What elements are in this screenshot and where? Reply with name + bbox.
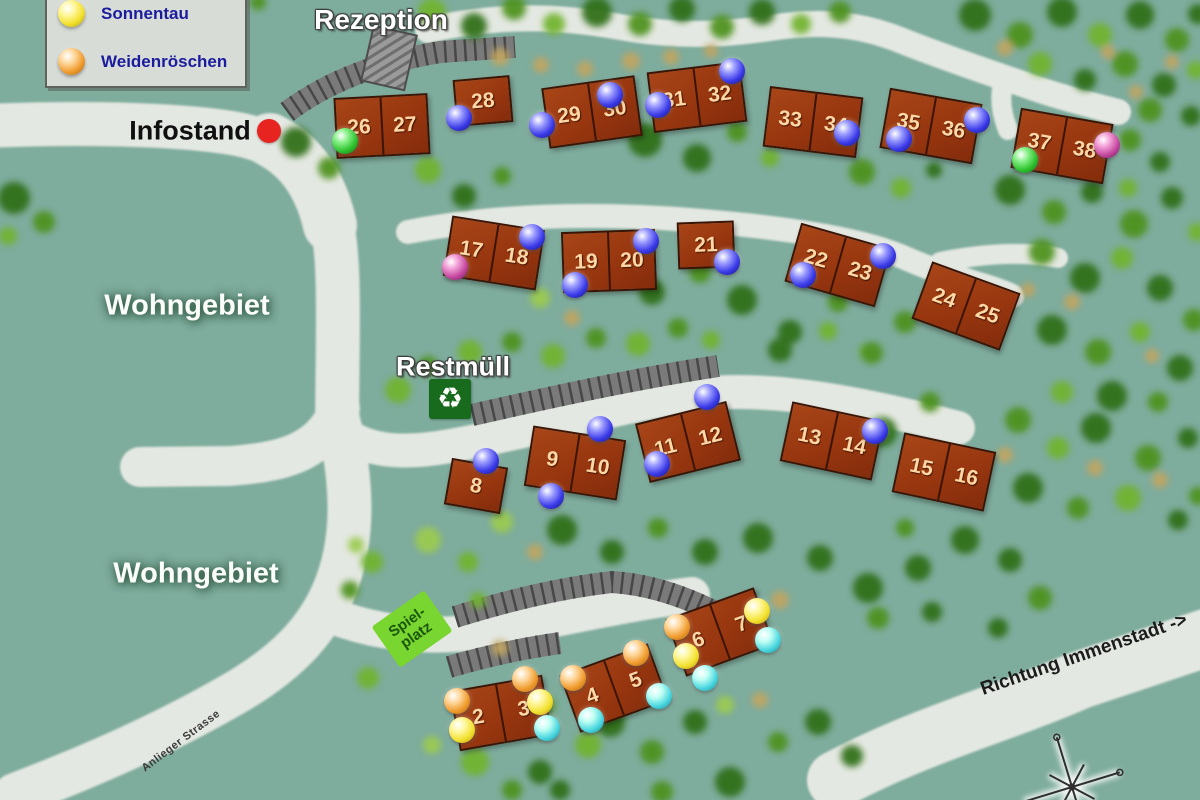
occupancy-ball-orange <box>664 614 690 640</box>
occupancy-ball-orange <box>512 666 538 692</box>
occupancy-ball-orange <box>623 640 649 666</box>
legend-ball-yellow-icon <box>58 0 85 27</box>
occupancy-ball-blue <box>862 418 888 444</box>
legend: Sonnentau Weidenröschen <box>45 0 247 88</box>
occupancy-ball-yellow <box>673 643 699 669</box>
occupancy-ball-blue <box>790 262 816 288</box>
occupancy-ball-cyan <box>534 715 560 741</box>
occupancy-ball-magenta <box>1094 132 1120 158</box>
occupancy-ball-magenta <box>442 254 468 280</box>
occupancy-ball-cyan <box>646 683 672 709</box>
occupancy-ball-blue <box>633 228 659 254</box>
wohngebiet-label-upper: Wohngebiet <box>104 290 269 323</box>
occupancy-ball-blue <box>473 448 499 474</box>
occupancy-ball-yellow <box>744 598 770 624</box>
recycle-station: ♻ <box>429 379 471 419</box>
occupancy-ball-blue <box>446 105 472 131</box>
occupancy-ball-blue <box>834 120 860 146</box>
occupancy-ball-blue <box>645 92 671 118</box>
wohngebiet-label-lower: Wohngebiet <box>113 558 278 591</box>
occupancy-ball-blue <box>538 483 564 509</box>
occupancy-ball-green <box>1012 147 1038 173</box>
plot-29-30[interactable]: 2930 <box>541 75 643 148</box>
legend-item-weidenroeschen: Weidenröschen <box>58 48 245 75</box>
legend-label: Sonnentau <box>101 4 189 24</box>
occupancy-ball-blue <box>964 107 990 133</box>
occupancy-ball-blue <box>719 58 745 84</box>
occupancy-ball-cyan <box>755 627 781 653</box>
occupancy-ball-yellow <box>527 689 553 715</box>
occupancy-ball-orange <box>560 665 586 691</box>
plot-number: 27 <box>380 95 429 154</box>
occupancy-ball-blue <box>597 82 623 108</box>
occupancy-ball-yellow <box>449 717 475 743</box>
occupancy-ball-orange <box>444 688 470 714</box>
occupancy-ball-cyan <box>692 665 718 691</box>
plot-number: 10 <box>570 435 624 498</box>
plot-number: 33 <box>765 88 816 150</box>
occupancy-ball-blue <box>886 126 912 152</box>
infostand-label: Infostand <box>129 116 251 147</box>
occupancy-ball-blue <box>562 272 588 298</box>
recycle-icon: ♻ <box>437 385 463 414</box>
occupancy-ball-blue <box>644 451 670 477</box>
occupancy-ball-blue <box>587 416 613 442</box>
campground-map: 2627282930313233343536373817181920212223… <box>0 0 1200 800</box>
occupancy-ball-blue <box>870 243 896 269</box>
occupancy-ball-blue <box>714 249 740 275</box>
legend-ball-orange-icon <box>58 48 85 75</box>
occupancy-ball-blue <box>694 384 720 410</box>
occupancy-ball-green <box>332 128 358 154</box>
restmuell-label: Restmüll <box>396 352 510 383</box>
legend-label: Weidenröschen <box>101 52 227 72</box>
legend-item-sonnentau: Sonnentau <box>58 0 245 27</box>
occupancy-ball-blue <box>519 224 545 250</box>
occupancy-ball-cyan <box>578 707 604 733</box>
infostand-marker <box>257 119 281 143</box>
occupancy-ball-blue <box>529 112 555 138</box>
rezeption-label: Rezeption <box>314 4 448 36</box>
